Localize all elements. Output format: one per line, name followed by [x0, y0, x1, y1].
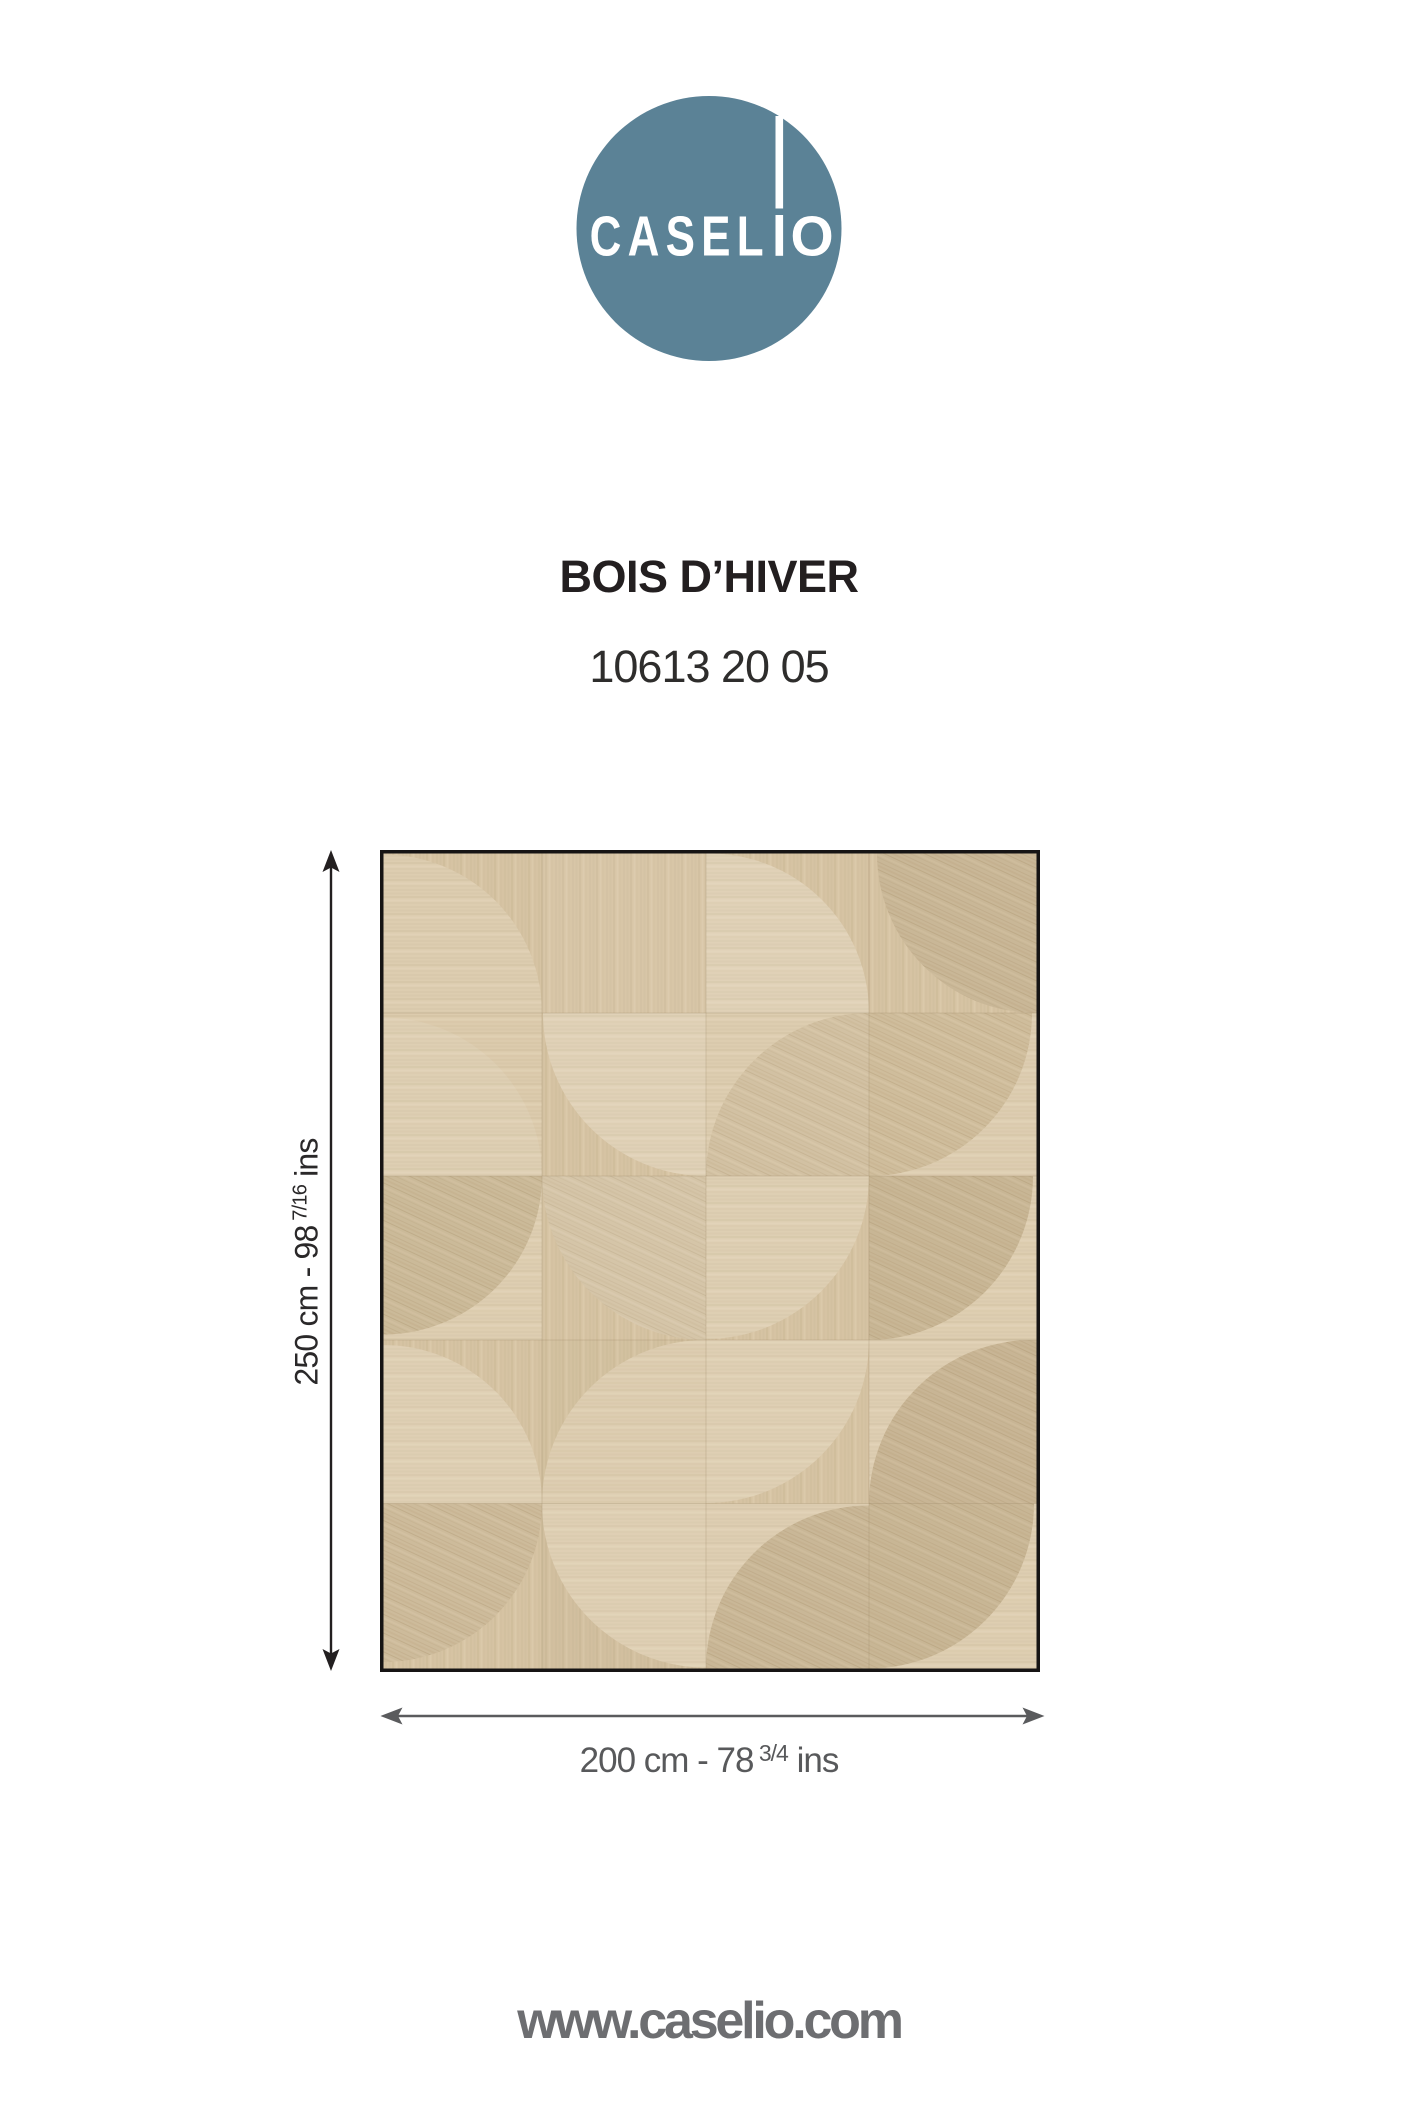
svg-text:CASEL: CASEL	[590, 204, 764, 268]
svg-text:O: O	[791, 204, 834, 267]
